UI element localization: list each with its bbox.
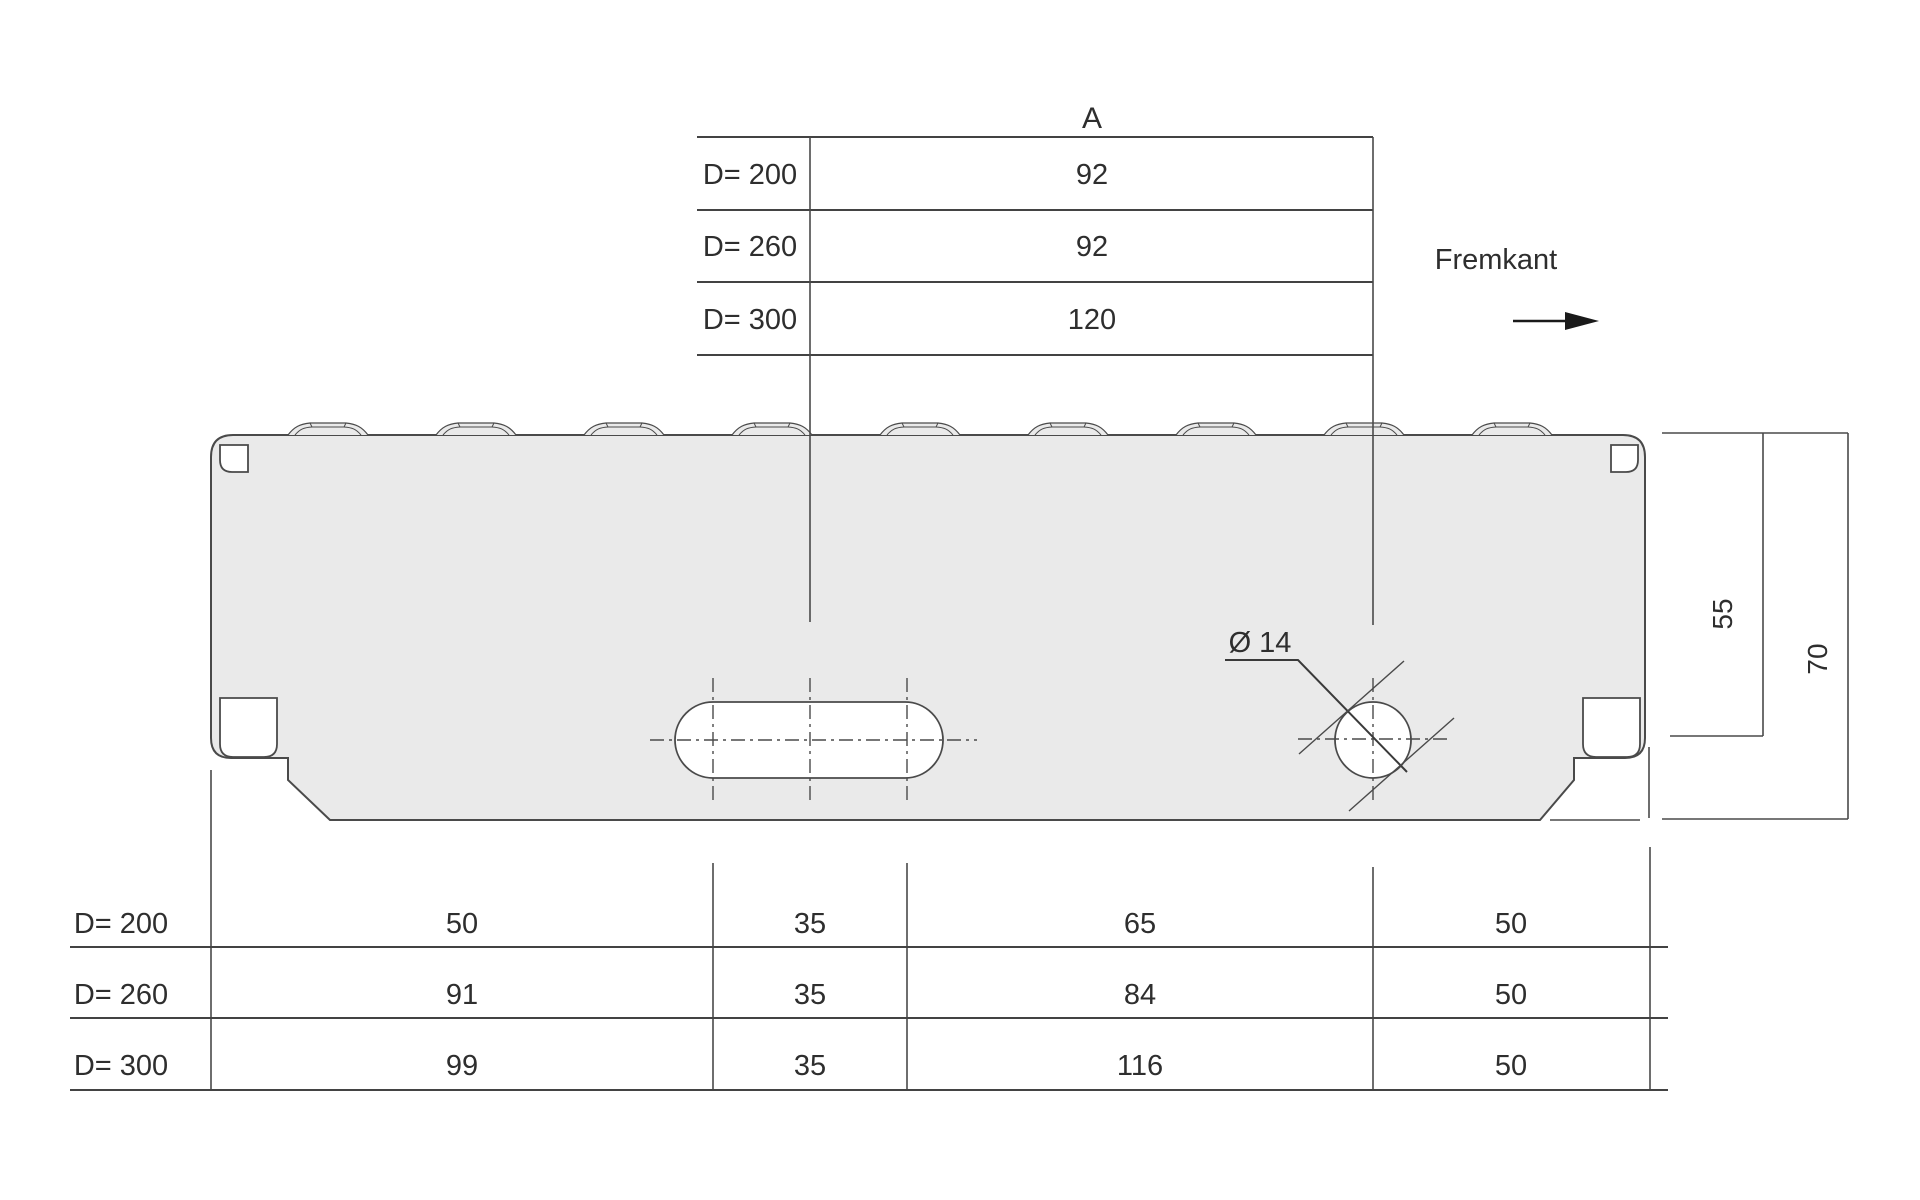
tread-bump <box>584 423 664 435</box>
bottom-table-cell: 116 <box>1117 1050 1163 1082</box>
bottom-table-cell: 35 <box>794 908 826 940</box>
front-edge-label: Fremkant <box>1435 244 1557 276</box>
bottom-table-cell: 50 <box>1495 1050 1527 1082</box>
bottom-table-cell: 65 <box>1124 908 1156 940</box>
tread-bump <box>288 423 368 435</box>
bottom-table-row-label: D= 260 <box>74 979 168 1011</box>
cutout-top-right <box>1611 445 1638 472</box>
tread-bump <box>436 423 516 435</box>
bottom-table-cell: 84 <box>1124 979 1156 1011</box>
bottom-table-cell: 91 <box>446 979 478 1011</box>
bottom-table-cell: 50 <box>1495 908 1527 940</box>
tread-bump <box>880 423 960 435</box>
top-table-row-value: 120 <box>1068 304 1116 336</box>
bottom-table-cell: 35 <box>794 1050 826 1082</box>
bottom-table-cell: 50 <box>1495 979 1527 1011</box>
bottom-table-row-label: D= 300 <box>74 1050 168 1082</box>
bottom-table-cell: 35 <box>794 979 826 1011</box>
tread-bump <box>1472 423 1552 435</box>
dim-label-55: 55 <box>1707 598 1738 629</box>
tread-bump <box>1028 423 1108 435</box>
top-table-header: A <box>1082 102 1102 135</box>
tread-bump <box>1176 423 1256 435</box>
tread-bumps <box>288 423 1552 435</box>
cutout-bottom-left <box>220 698 277 757</box>
tread-bump <box>1324 423 1404 435</box>
cutout-top-left <box>220 445 248 472</box>
bottom-table-cell: 99 <box>446 1050 478 1082</box>
drawing-canvas: A D= 200 92 D= 260 92 D= 300 120 Fremkan… <box>0 0 1920 1200</box>
technical-drawing-page: A D= 200 92 D= 260 92 D= 300 120 Fremkan… <box>0 0 1920 1200</box>
top-table-row-label: D= 260 <box>703 231 797 263</box>
top-table-row-label: D= 200 <box>703 159 797 191</box>
bottom-table-cell: 50 <box>446 908 478 940</box>
tread-bump <box>732 423 812 435</box>
cutout-bottom-right <box>1583 698 1640 757</box>
top-table-row-label: D= 300 <box>703 304 797 336</box>
hole-diameter-label: Ø 14 <box>1229 627 1292 659</box>
bottom-table-row-label: D= 200 <box>74 908 168 940</box>
dim-label-70: 70 <box>1802 643 1833 674</box>
top-table-row-value: 92 <box>1076 231 1108 263</box>
top-table-row-value: 92 <box>1076 159 1108 191</box>
